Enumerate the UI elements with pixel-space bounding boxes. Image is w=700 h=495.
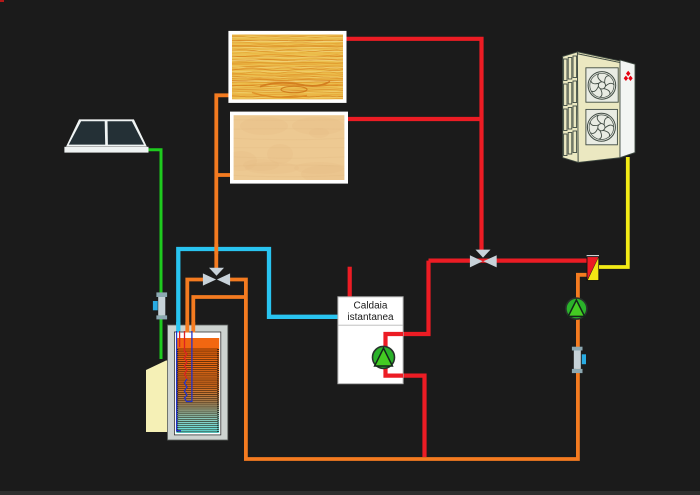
svg-text:istantanea: istantanea bbox=[347, 312, 394, 323]
svg-text:Caldaia: Caldaia bbox=[354, 301, 388, 312]
